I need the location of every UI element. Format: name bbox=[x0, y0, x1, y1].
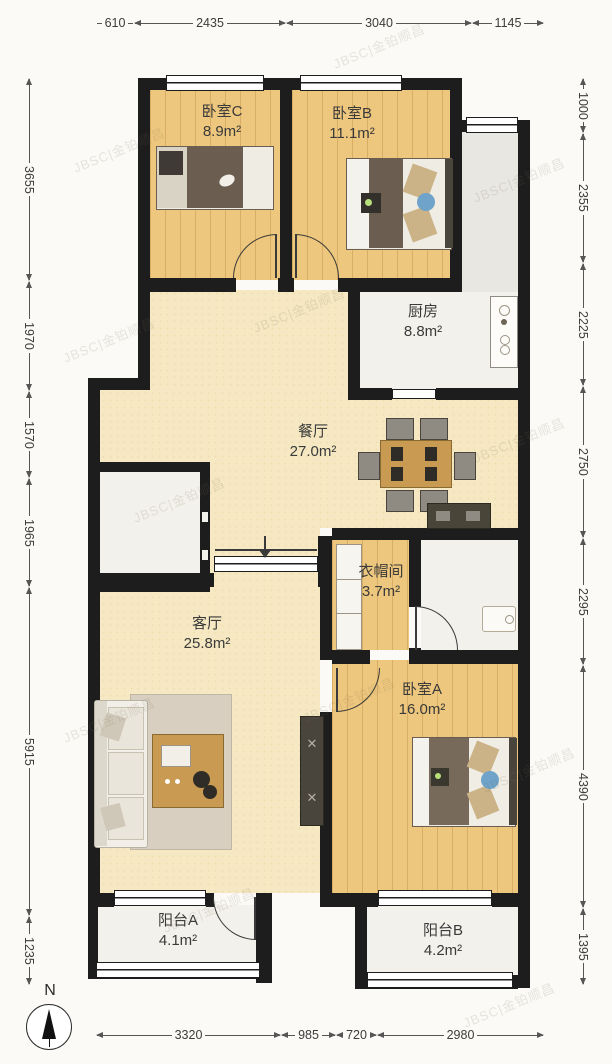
dim-label: 2435 bbox=[193, 16, 227, 30]
room-label-closet: 衣帽间 3.7m² bbox=[316, 562, 446, 601]
wall-opening bbox=[202, 512, 208, 522]
bed-icon bbox=[156, 146, 274, 210]
room-name: 卧室C bbox=[157, 102, 287, 122]
table-tray bbox=[161, 745, 191, 767]
dimension-left-5: 1235 bbox=[22, 916, 36, 985]
dimension-left-2: 1570 bbox=[22, 391, 36, 478]
wall bbox=[518, 120, 530, 988]
dim-label: 610 bbox=[102, 16, 129, 30]
floor-corridor bbox=[462, 132, 518, 292]
room-area: 27.0m² bbox=[248, 442, 378, 462]
chair-icon bbox=[386, 418, 414, 440]
dimension-left-1: 1970 bbox=[22, 281, 36, 391]
place-mat bbox=[391, 467, 403, 481]
dimension-right-4: 2295 bbox=[576, 538, 590, 665]
wall bbox=[138, 278, 236, 292]
room-area: 4.2m² bbox=[378, 941, 508, 961]
floor-utility-room bbox=[100, 472, 200, 582]
wall bbox=[332, 528, 520, 540]
dim-label: 2355 bbox=[576, 181, 590, 215]
table-dot bbox=[165, 779, 170, 784]
window bbox=[166, 75, 264, 91]
door-leaf bbox=[415, 606, 417, 650]
dimension-bottom-3: 2980 bbox=[377, 1028, 544, 1042]
sofa-cushion bbox=[108, 752, 144, 795]
chair-icon bbox=[386, 490, 414, 512]
door-leaf bbox=[254, 897, 256, 940]
dimension-right-5: 4390 bbox=[576, 665, 590, 908]
dim-label: 1235 bbox=[22, 934, 36, 968]
room-area: 25.8m² bbox=[142, 634, 272, 654]
bed-pillow bbox=[467, 785, 500, 820]
room-name: 客厅 bbox=[142, 614, 272, 634]
stove-burner-icon bbox=[500, 335, 510, 345]
room-name: 厨房 bbox=[358, 302, 488, 322]
room-name: 阳台B bbox=[378, 921, 508, 941]
bed-icon bbox=[412, 737, 516, 827]
dimension-bottom-0: 3320 bbox=[96, 1028, 281, 1042]
stove-burner-icon bbox=[500, 345, 510, 355]
window bbox=[378, 890, 492, 906]
dimension-left-4: 5915 bbox=[22, 587, 36, 916]
dim-label: 985 bbox=[295, 1028, 322, 1042]
tv-cabinet-icon: ✕✕ bbox=[300, 716, 324, 826]
entry-door bbox=[214, 556, 318, 572]
dimension-right-0: 1000 bbox=[576, 78, 590, 133]
sink-icon bbox=[499, 305, 510, 316]
door-leaf bbox=[336, 668, 338, 712]
sideboard-icon bbox=[427, 503, 491, 529]
window bbox=[114, 890, 206, 906]
dimension-top-3: 1145 bbox=[472, 16, 544, 30]
entry-arrow-icon bbox=[264, 536, 266, 550]
wall-opening bbox=[202, 550, 208, 560]
dimension-right-1: 2355 bbox=[576, 133, 590, 263]
room-name: 餐厅 bbox=[248, 422, 378, 442]
dimension-left-0: 3655 bbox=[22, 78, 36, 281]
room-label-balconyA: 阳台A 4.1m² bbox=[113, 911, 243, 950]
table-dot bbox=[175, 779, 180, 784]
wall bbox=[88, 573, 214, 587]
bed-round-pillow bbox=[417, 193, 435, 211]
nightstand-icon bbox=[159, 151, 183, 175]
dimension-top-0: 610 bbox=[96, 16, 134, 30]
dimension-bottom-1: 985 bbox=[281, 1028, 336, 1042]
chair-icon bbox=[420, 418, 448, 440]
dimension-right-3: 2750 bbox=[576, 386, 590, 538]
room-name: 衣帽间 bbox=[316, 562, 446, 582]
dim-label: 1395 bbox=[576, 930, 590, 964]
room-area: 8.9m² bbox=[157, 122, 287, 142]
bed-headboard bbox=[445, 159, 453, 248]
wall bbox=[88, 378, 150, 390]
bed-pillow bbox=[403, 205, 438, 242]
compass-north-label: N bbox=[20, 982, 80, 1000]
compass-needle-icon bbox=[42, 1009, 56, 1039]
wall bbox=[138, 290, 150, 388]
dim-label: 1570 bbox=[22, 418, 36, 452]
compass-needle-tail bbox=[49, 1039, 51, 1047]
room-label-balconyB: 阳台B 4.2m² bbox=[378, 921, 508, 960]
place-mat bbox=[425, 467, 437, 481]
room-name: 阳台A bbox=[113, 911, 243, 931]
wall bbox=[348, 388, 392, 400]
dim-label: 3320 bbox=[172, 1028, 206, 1042]
dim-label: 1000 bbox=[576, 89, 590, 123]
dimension-right-6: 1395 bbox=[576, 908, 590, 985]
room-label-living: 客厅 25.8m² bbox=[142, 614, 272, 653]
wall bbox=[278, 278, 294, 292]
coffee-table-icon bbox=[152, 734, 224, 808]
dim-label: 2225 bbox=[576, 308, 590, 342]
place-mat bbox=[391, 447, 403, 461]
dining-table-icon bbox=[380, 440, 452, 488]
kitchen-threshold bbox=[392, 389, 436, 399]
bed-pillow bbox=[467, 741, 500, 776]
wall bbox=[436, 388, 518, 400]
washer-dial bbox=[505, 615, 514, 624]
bed-side-panel bbox=[413, 738, 430, 825]
stove-burner-icon bbox=[501, 319, 507, 325]
place-mat bbox=[425, 447, 437, 461]
chair-icon bbox=[454, 452, 476, 480]
dim-label: 2980 bbox=[444, 1028, 478, 1042]
room-area: 3.7m² bbox=[316, 582, 446, 602]
sofa-icon bbox=[94, 700, 148, 848]
floor-dining-upper bbox=[150, 290, 348, 390]
room-area: 4.1m² bbox=[113, 931, 243, 951]
dim-label: 720 bbox=[343, 1028, 370, 1042]
room-area: 16.0m² bbox=[357, 700, 487, 720]
washing-machine-icon bbox=[482, 606, 516, 632]
kitchen-counter-icon bbox=[490, 296, 518, 368]
dim-label: 3040 bbox=[362, 16, 396, 30]
dim-label: 5915 bbox=[22, 735, 36, 769]
wall bbox=[138, 78, 150, 290]
compass: N bbox=[20, 982, 80, 1062]
bed-tray-dot bbox=[435, 773, 441, 779]
room-name: 卧室A bbox=[357, 680, 487, 700]
room-label-bedroomB: 卧室B 11.1m² bbox=[287, 104, 417, 143]
room-label-bedroomA: 卧室A 16.0m² bbox=[357, 680, 487, 719]
dim-label: 4390 bbox=[576, 770, 590, 804]
room-name: 卧室B bbox=[287, 104, 417, 124]
window bbox=[96, 962, 260, 978]
wall bbox=[320, 893, 378, 907]
wall bbox=[100, 462, 210, 472]
dim-label: 3655 bbox=[22, 163, 36, 197]
dimension-left-3: 1965 bbox=[22, 478, 36, 587]
room-label-kitchen: 厨房 8.8m² bbox=[358, 302, 488, 341]
bed-icon bbox=[346, 158, 452, 250]
dim-label: 1965 bbox=[22, 516, 36, 550]
wall bbox=[492, 893, 520, 907]
cabinet-x-mark: ✕ bbox=[307, 736, 318, 752]
dimension-top-1: 2435 bbox=[134, 16, 286, 30]
window bbox=[466, 117, 518, 133]
cabinet-x-mark: ✕ bbox=[307, 790, 318, 806]
bed-headboard bbox=[509, 738, 517, 825]
room-area: 11.1m² bbox=[287, 124, 417, 144]
dim-label: 1970 bbox=[22, 319, 36, 353]
door-leaf bbox=[275, 234, 277, 278]
dimension-bottom-2: 720 bbox=[336, 1028, 377, 1042]
sideboard-drawer bbox=[436, 511, 450, 521]
room-area: 8.8m² bbox=[358, 322, 488, 342]
dim-label: 1145 bbox=[492, 16, 525, 30]
room-label-dining: 餐厅 27.0m² bbox=[248, 422, 378, 461]
sideboard-drawer bbox=[466, 511, 480, 521]
dim-label: 2295 bbox=[576, 585, 590, 619]
room-label-bedroomC: 卧室C 8.9m² bbox=[157, 102, 287, 141]
dim-label: 2750 bbox=[576, 445, 590, 479]
entry-arrow-head-icon bbox=[259, 550, 271, 558]
table-decor bbox=[203, 785, 217, 799]
bed-tray-dot bbox=[365, 199, 372, 206]
wall bbox=[409, 650, 518, 664]
wall bbox=[332, 650, 370, 664]
dimension-top-2: 3040 bbox=[286, 16, 472, 30]
door-leaf bbox=[295, 234, 297, 278]
window bbox=[367, 972, 513, 988]
window bbox=[300, 75, 402, 91]
bed-round-pillow bbox=[481, 771, 499, 789]
dimension-right-2: 2225 bbox=[576, 263, 590, 386]
wall bbox=[355, 893, 367, 987]
